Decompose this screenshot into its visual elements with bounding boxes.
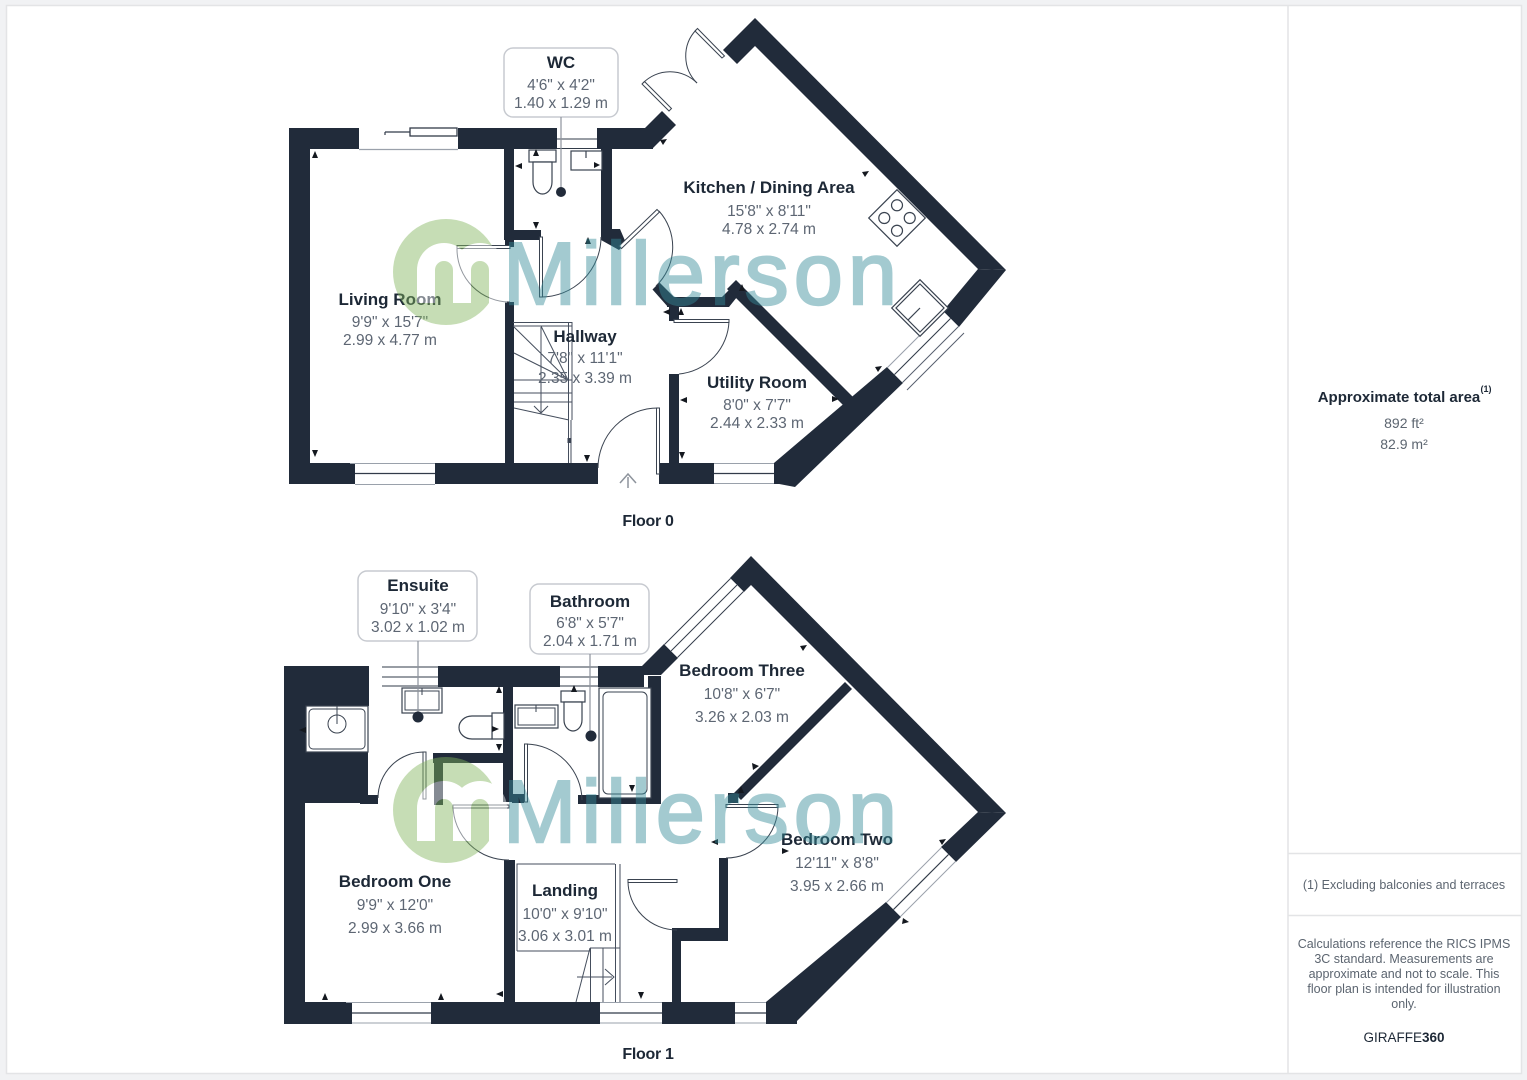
svg-text:Bathroom: Bathroom bbox=[550, 592, 630, 611]
svg-text:3.95 x 2.66 m: 3.95 x 2.66 m bbox=[790, 878, 884, 895]
svg-text:3.26 x 2.03 m: 3.26 x 2.03 m bbox=[695, 709, 789, 726]
svg-text:2.99 x 4.77 m: 2.99 x 4.77 m bbox=[343, 332, 437, 349]
svg-text:Ensuite: Ensuite bbox=[387, 576, 448, 595]
svg-text:Floor 1: Floor 1 bbox=[622, 1046, 674, 1063]
svg-text:Millerson: Millerson bbox=[503, 762, 897, 861]
svg-text:2.04 x 1.71 m: 2.04 x 1.71 m bbox=[543, 633, 637, 650]
svg-text:3.06 x 3.01 m: 3.06 x 3.01 m bbox=[518, 928, 612, 945]
svg-text:3C standard. Measurements are: 3C standard. Measurements are bbox=[1314, 952, 1493, 966]
svg-text:Bedroom One: Bedroom One bbox=[339, 872, 451, 891]
svg-text:only.: only. bbox=[1391, 997, 1416, 1011]
svg-text:Bedroom Three: Bedroom Three bbox=[679, 661, 805, 680]
svg-text:approximate and not to scale.: approximate and not to scale. This bbox=[1309, 967, 1500, 981]
svg-text:3.02 x 1.02 m: 3.02 x 1.02 m bbox=[371, 619, 465, 636]
svg-text:Calculations reference the RIC: Calculations reference the RICS IPMS bbox=[1298, 937, 1511, 951]
svg-text:6'8" x 5'7": 6'8" x 5'7" bbox=[556, 615, 624, 632]
svg-text:9'9" x 12'0": 9'9" x 12'0" bbox=[357, 897, 433, 914]
svg-text:Kitchen / Dining Area: Kitchen / Dining Area bbox=[683, 178, 855, 197]
svg-text:2.44 x 2.33 m: 2.44 x 2.33 m bbox=[710, 415, 804, 432]
svg-text:Millerson: Millerson bbox=[503, 224, 897, 323]
svg-text:WC: WC bbox=[547, 53, 575, 72]
svg-text:Floor 0: Floor 0 bbox=[622, 513, 674, 530]
svg-text:Utility Room: Utility Room bbox=[707, 373, 807, 392]
svg-text:(1): (1) bbox=[1481, 384, 1492, 394]
svg-text:(1) Excluding balconies and te: (1) Excluding balconies and terraces bbox=[1303, 878, 1505, 892]
svg-text:10'0" x 9'10": 10'0" x 9'10" bbox=[522, 906, 607, 923]
svg-text:2.35 x 3.39 m: 2.35 x 3.39 m bbox=[538, 370, 632, 387]
svg-text:8'0" x 7'7": 8'0" x 7'7" bbox=[723, 397, 791, 414]
svg-text:10'8" x 6'7": 10'8" x 6'7" bbox=[704, 686, 780, 703]
svg-text:Approximate total area: Approximate total area bbox=[1318, 389, 1481, 406]
svg-text:GIRAFFE360: GIRAFFE360 bbox=[1363, 1030, 1444, 1045]
svg-text:9'9" x 15'7": 9'9" x 15'7" bbox=[352, 314, 428, 331]
svg-text:7'8" x 11'1": 7'8" x 11'1" bbox=[547, 350, 622, 367]
svg-text:Landing: Landing bbox=[532, 881, 598, 900]
svg-text:Hallway: Hallway bbox=[553, 327, 617, 346]
svg-text:2.99 x 3.66 m: 2.99 x 3.66 m bbox=[348, 920, 442, 937]
svg-text:892 ft²: 892 ft² bbox=[1384, 415, 1424, 431]
svg-text:9'10" x 3'4": 9'10" x 3'4" bbox=[380, 601, 456, 618]
svg-text:1.40 x 1.29 m: 1.40 x 1.29 m bbox=[514, 95, 608, 112]
svg-text:floor plan is intended for ill: floor plan is intended for illustration bbox=[1307, 982, 1500, 996]
svg-text:82.9 m²: 82.9 m² bbox=[1380, 436, 1428, 452]
svg-text:4'6" x 4'2": 4'6" x 4'2" bbox=[527, 77, 595, 94]
svg-text:15'8" x 8'11": 15'8" x 8'11" bbox=[727, 203, 811, 220]
